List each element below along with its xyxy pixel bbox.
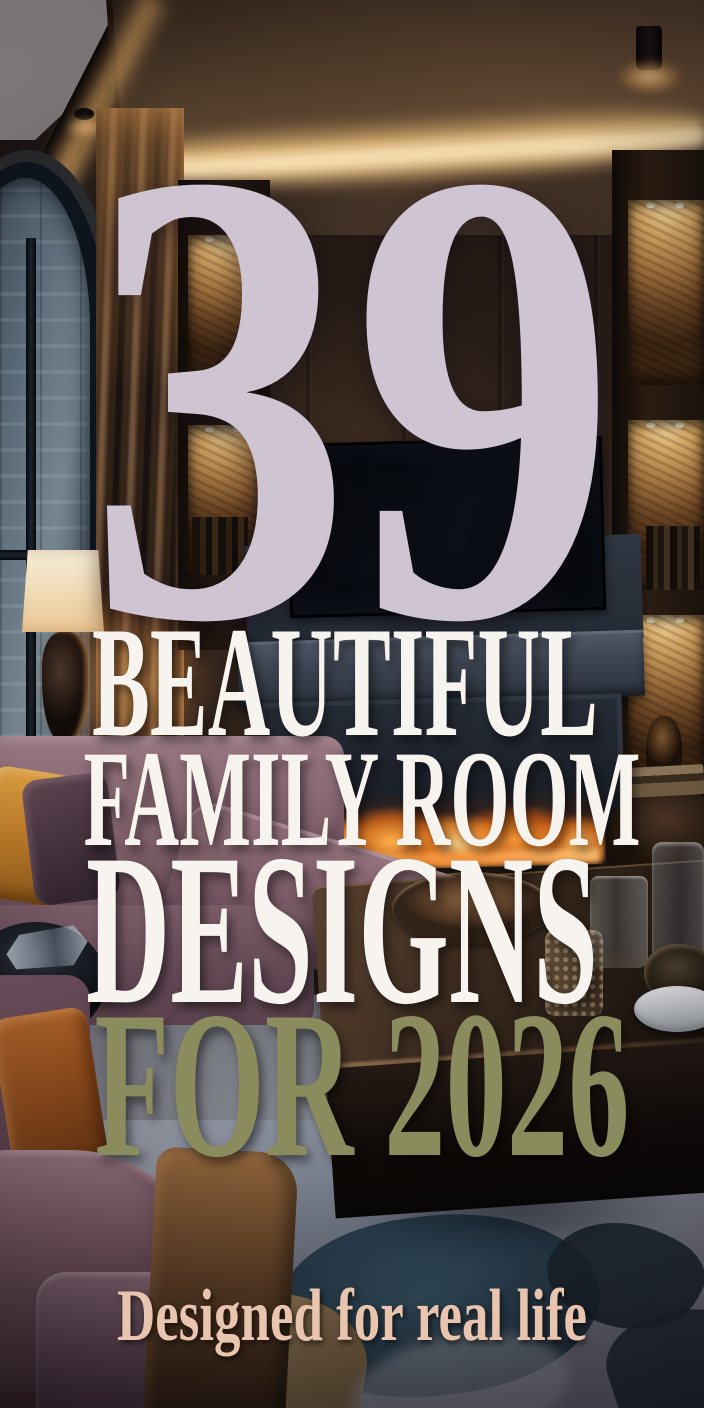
tagline: Designed for real life xyxy=(117,1275,587,1357)
pin-poster: 39 BEAUTIFUL FAMILY ROOM DESIGNS FOR 202… xyxy=(0,0,704,1408)
typography-layer: 39 BEAUTIFUL FAMILY ROOM DESIGNS FOR 202… xyxy=(0,0,704,1408)
accent-line: FOR 2026 xyxy=(95,969,630,1201)
